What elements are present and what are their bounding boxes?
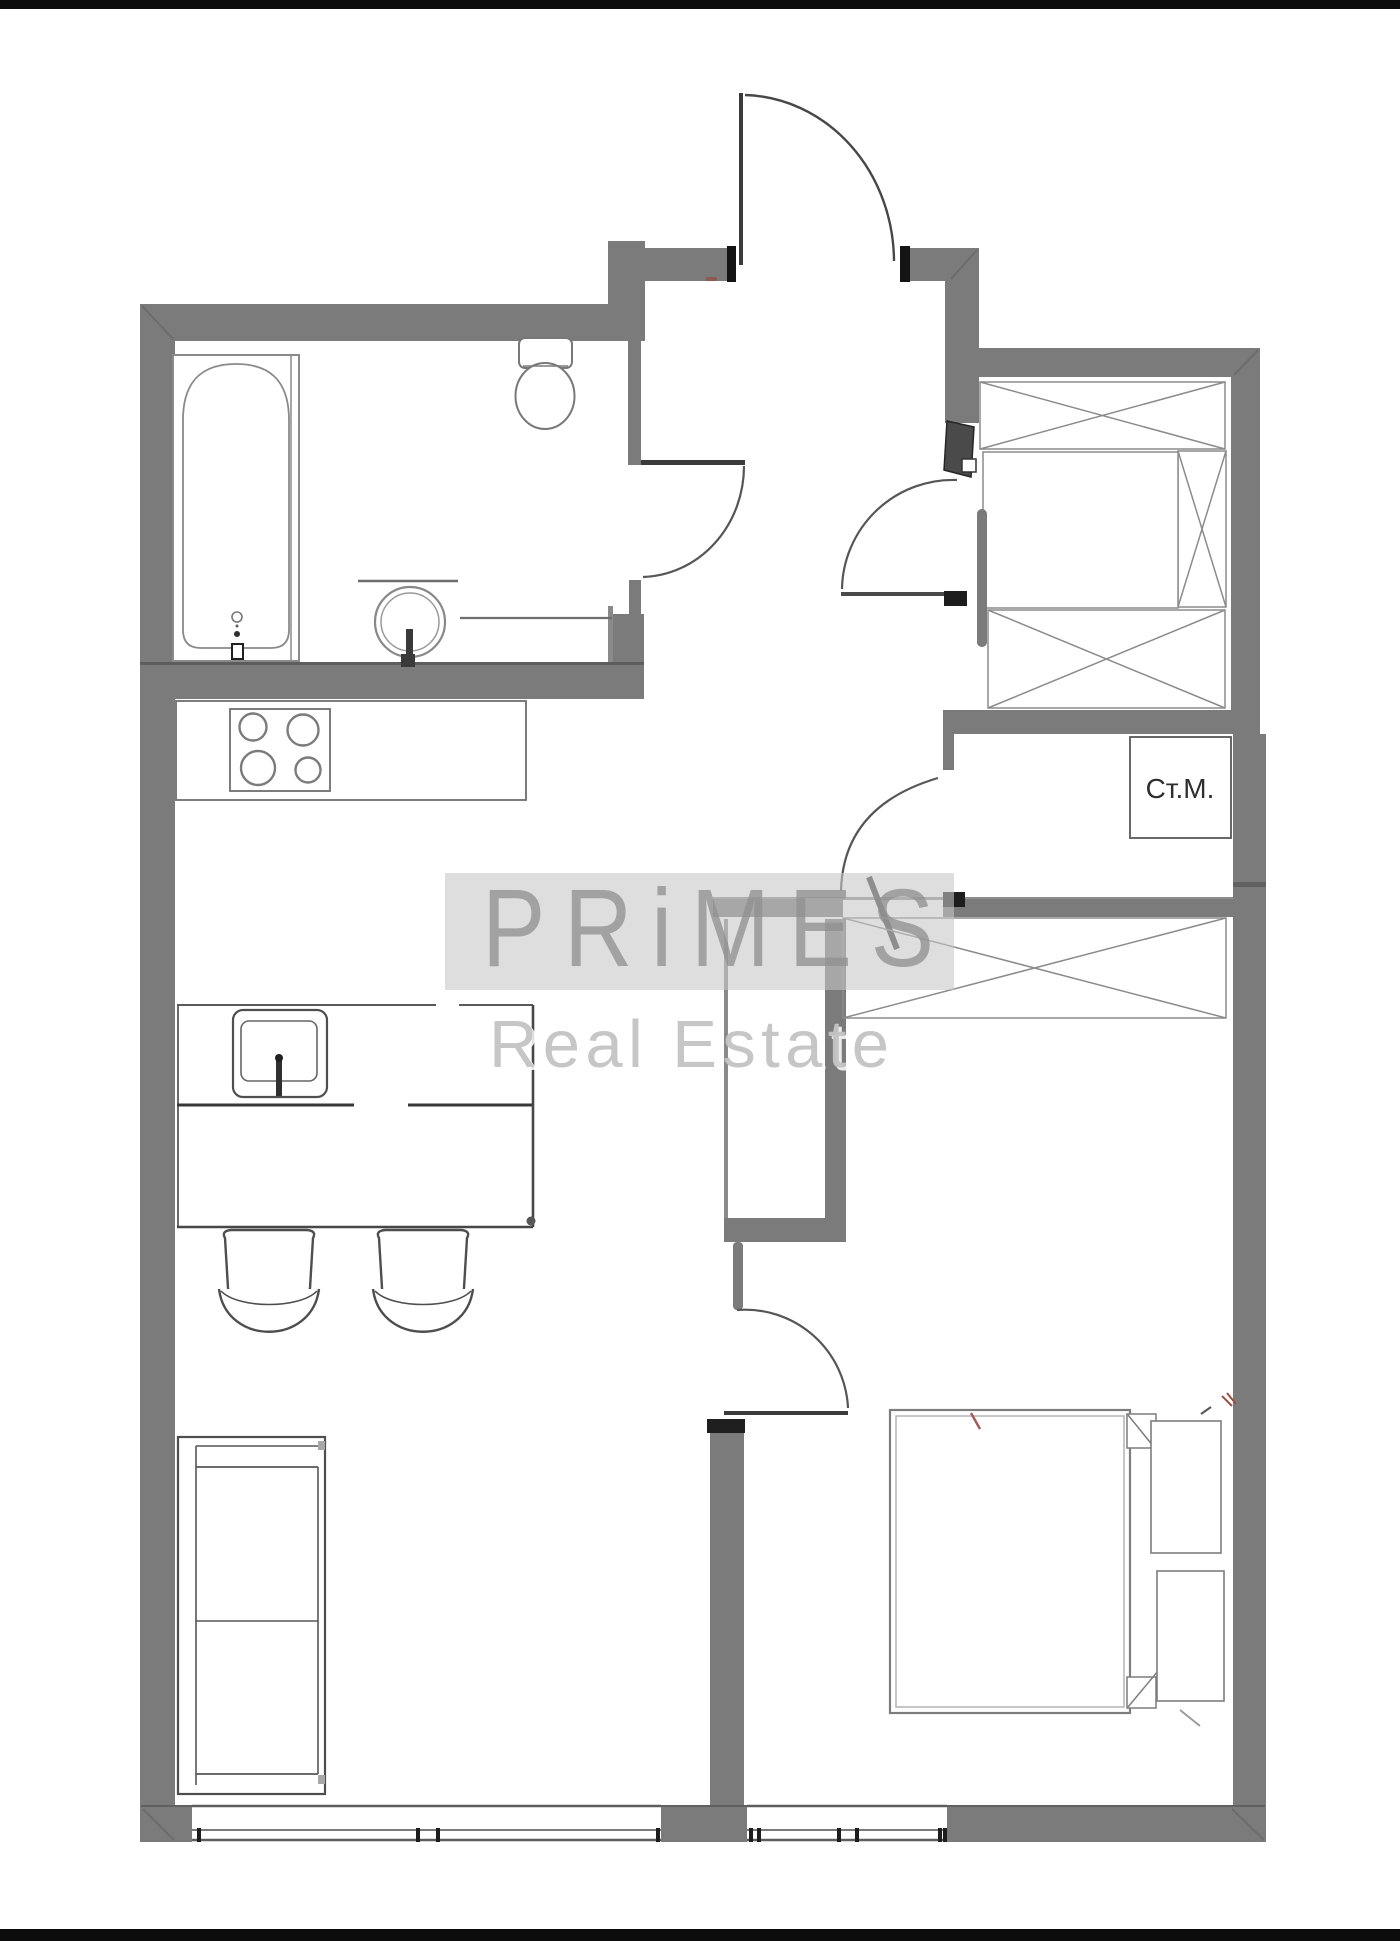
svg-text:Real Estate: Real Estate (489, 1007, 889, 1082)
svg-text:PRiMES: PRiMES (482, 866, 942, 989)
svg-text:Ст.М.: Ст.М. (1146, 773, 1215, 804)
